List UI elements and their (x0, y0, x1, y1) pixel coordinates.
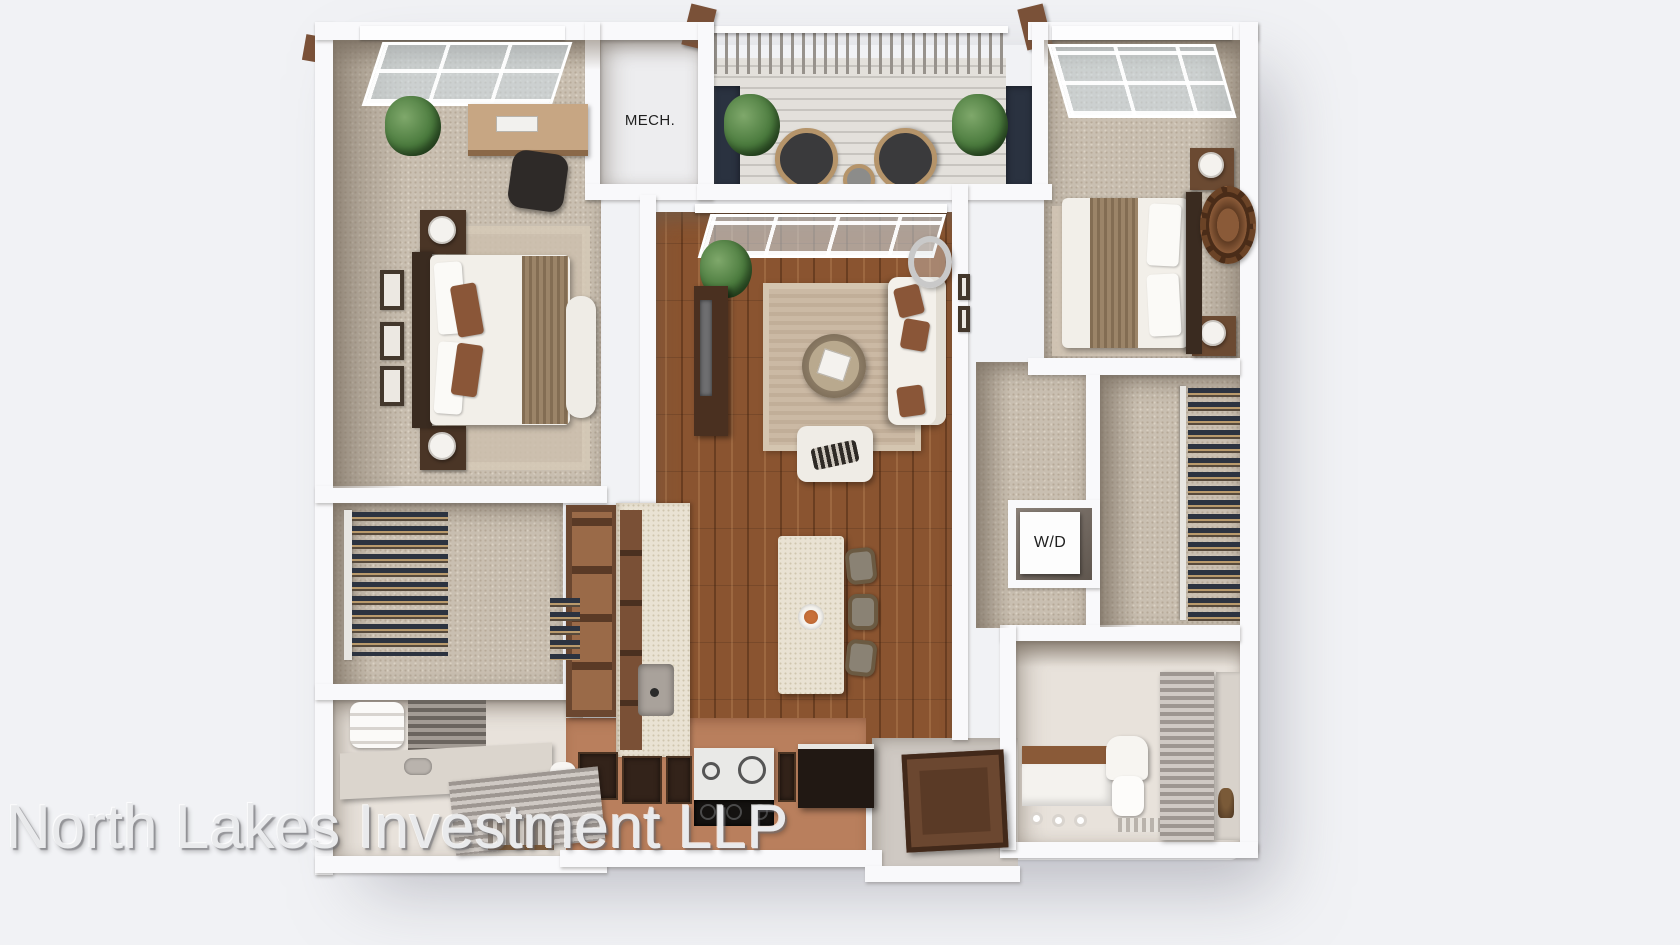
mech-room-label: MECH. (598, 112, 702, 132)
closet-right-wall-face (1100, 375, 1138, 627)
bathroom-right-wall-face (1016, 641, 1240, 667)
bedroom-left-picture-frame-2 (380, 322, 404, 360)
bedroom-right-lamp-top (1198, 152, 1224, 178)
wall-exterior-left (315, 22, 333, 875)
bathroom-left-dark-towels (408, 700, 486, 750)
wall-living-top (697, 184, 1052, 200)
bedroom-left-desk-laptop (496, 116, 538, 132)
wall-bottom-bathroom-right (1000, 842, 1258, 858)
wall-closet-left-top (315, 486, 607, 503)
wall-bottom-entry (865, 866, 1020, 882)
island-fruit (804, 610, 818, 624)
island-stool-2 (848, 594, 878, 630)
hallway-wall-face (976, 362, 1010, 628)
bedroom-right-pillow-1 (1146, 203, 1181, 267)
toilet-paper-roll-3 (1074, 814, 1087, 827)
living-wall-frame-1 (958, 274, 970, 300)
round-floor-mirror (908, 236, 952, 288)
living-wall-frame-2 (958, 306, 970, 332)
wall-closet-left-bottom (315, 684, 607, 700)
bedroom-right-pillow-2 (1146, 273, 1181, 337)
closet-left-hanging-clothes-2 (550, 598, 580, 660)
bedroom-left-picture-frame-1 (380, 270, 404, 310)
closet-left-hanging-clothes (352, 512, 448, 656)
watermark-text: North Lakes Investment LLP (6, 792, 788, 863)
refrigerator (798, 744, 874, 808)
balcony-railing-top-bar (712, 26, 1008, 33)
balcony-plant-left (724, 94, 780, 156)
wall-living-left (640, 195, 656, 510)
bedroom-right-sunburst-mirror (1200, 186, 1256, 264)
bedroom-left-lamp-top (428, 216, 456, 244)
bathroom-right-vanity-counter (1022, 746, 1112, 764)
bedroom-left-bed-headboard (412, 252, 432, 428)
bathroom-right-shower-glass (1160, 672, 1214, 840)
balcony-plant-right (952, 94, 1008, 156)
wall-balcony-left (698, 22, 714, 188)
wall-living-right (952, 184, 968, 740)
wall-bedroom-right-bottom (1028, 358, 1240, 375)
bathroom-right-towel (1118, 818, 1164, 832)
toilet-paper-roll-2 (1052, 814, 1065, 827)
bathroom-left-towel-shelf (350, 702, 404, 748)
closet-right-shelf-rail (1180, 386, 1186, 620)
sliding-door-track (695, 204, 947, 213)
closet-right-hanging-clothes (1188, 388, 1240, 622)
island-stool-3 (844, 639, 878, 678)
bedroom-right-lamp-bottom (1200, 320, 1226, 346)
bedroom-left-window-glass (362, 42, 573, 106)
bedroom-left-office-chair (506, 148, 570, 213)
cooktop-dial-2 (738, 756, 766, 784)
laundry-label: W/D (1020, 534, 1080, 554)
bedroom-right-window-glass (1047, 44, 1236, 118)
kitchen-faucet (650, 688, 659, 697)
balcony-accent-wall-right (1006, 86, 1034, 188)
bedroom-left-window-frame (360, 26, 565, 40)
bathroom-right-vanity-body (1022, 764, 1112, 806)
tv-screen (700, 300, 712, 396)
toilet-paper-roll-1 (1030, 812, 1043, 825)
closet-left-shelf-rail (344, 510, 352, 660)
bathroom-right-toilet-seat (1112, 776, 1144, 816)
cooktop-dial-1 (702, 762, 720, 780)
bedroom-left-lamp-bottom (428, 432, 456, 460)
sofa-pillow-2 (900, 318, 931, 352)
island-stool-1 (844, 547, 878, 586)
bathroom-right-toilet-tank (1106, 736, 1148, 780)
wall-exterior-right (1240, 22, 1258, 852)
bedroom-left-picture-frame-3 (380, 366, 404, 406)
wall-bathroom-right-top (1000, 625, 1240, 641)
bedroom-left-plant (385, 96, 441, 156)
balcony-railing (714, 30, 1006, 74)
bedroom-left-foot-bench (566, 296, 596, 418)
bathroom-right-plant (1218, 788, 1234, 818)
entry-front-door (902, 749, 1009, 852)
bedroom-left-throw-blanket (522, 256, 568, 424)
bathroom-left-sink (404, 758, 432, 775)
sofa-pillow-3 (896, 384, 926, 417)
bedroom-right-window-frame (1052, 26, 1232, 40)
bedroom-right-throw-blanket (1090, 198, 1138, 348)
